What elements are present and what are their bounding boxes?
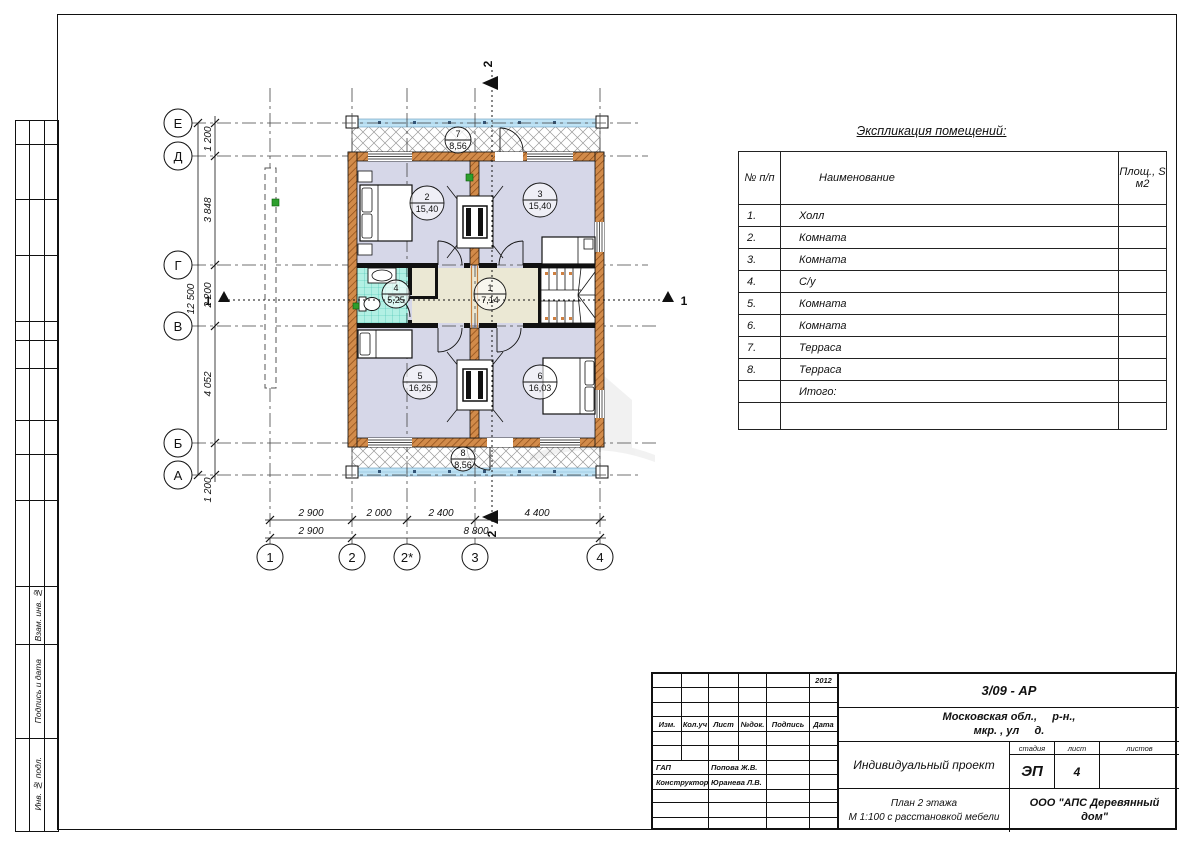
stamp-col-list: Лист (709, 717, 739, 732)
svg-text:4 400: 4 400 (524, 508, 549, 519)
table-row: 3.Комната (739, 249, 1167, 271)
table-header-row: № п/п Наименование Площ., S м2 (739, 152, 1167, 205)
table-row: 4.С/у (739, 271, 1167, 293)
svg-text:2: 2 (424, 192, 429, 202)
svg-text:2: 2 (348, 550, 355, 565)
stamp-sheets-label: листов (1100, 742, 1179, 755)
svg-text:6: 6 (537, 371, 542, 381)
stamp-doc-code: 3/09 - АР (839, 674, 1179, 708)
explication-table: № п/п Наименование Площ., S м2 1.Холл 2.… (738, 151, 1167, 430)
stamp-col-dok: №док. (739, 717, 767, 732)
stamp-stage-value: ЭП (1010, 755, 1055, 789)
stamp-name-gap: Попова Ж.В. (709, 761, 767, 775)
room-label-3: 3 15,40 (523, 183, 557, 217)
header-name: Наименование (781, 152, 1119, 205)
stamp-col-izm: Изм. (653, 717, 682, 732)
room-label-8: 8 8,56 (451, 447, 475, 471)
svg-text:2: 2 (481, 60, 495, 67)
svg-text:16,03: 16,03 (529, 383, 552, 393)
table-row: 2.Комната (739, 227, 1167, 249)
svg-text:16,26: 16,26 (409, 383, 432, 393)
axis-col-bubbles: 1 2 2* 3 4 (257, 544, 613, 570)
table-row: 8.Терраса (739, 359, 1167, 381)
table-row: 7.Терраса (739, 337, 1167, 359)
bed-room3 (542, 237, 595, 264)
svg-text:1: 1 (266, 550, 273, 565)
stamp-role-konstruktor: Конструктор (653, 775, 709, 790)
svg-text:1: 1 (681, 294, 688, 308)
stamp-sheet-label: лист (1055, 742, 1100, 755)
stamp-year: 2012 (810, 674, 839, 688)
svg-text:1 200: 1 200 (203, 126, 214, 151)
table-row-empty (739, 403, 1167, 430)
table-row: 6.Комната (739, 315, 1167, 337)
svg-text:2*: 2* (401, 550, 413, 565)
svg-text:2 900: 2 900 (297, 526, 323, 537)
svg-text:2 900: 2 900 (297, 508, 323, 519)
svg-text:12 500: 12 500 (186, 283, 197, 314)
stamp-address: Московская обл., р-н., мкр. , ул д. (839, 708, 1179, 742)
svg-text:4 052: 4 052 (203, 371, 214, 396)
header-area: Площ., S м2 (1119, 152, 1167, 205)
svg-text:Е: Е (174, 116, 183, 131)
svg-text:4: 4 (393, 283, 398, 293)
svg-text:Д: Д (174, 149, 183, 164)
svg-text:4: 4 (596, 550, 603, 565)
svg-text:3: 3 (537, 189, 542, 199)
svg-text:7: 7 (455, 129, 460, 139)
room-label-1: 1 7,14 (474, 278, 506, 310)
svg-text:2: 2 (485, 530, 499, 537)
svg-text:3 848: 3 848 (203, 197, 214, 222)
stamp-drawing-title: План 2 этажа М 1:100 с расстановкой мебе… (839, 789, 1010, 832)
room-label-6: 6 16,03 (523, 365, 557, 399)
drawing-sheet: Взам. инв. № Подпись и дата Инв. № подл. (0, 0, 1191, 842)
room-label-5: 5 16,26 (403, 365, 437, 399)
svg-text:15,40: 15,40 (416, 204, 439, 214)
stamp-col-podpis: Подпись (767, 717, 810, 732)
stamp-col-data: Дата (810, 717, 839, 732)
svg-text:8,56: 8,56 (454, 460, 472, 470)
svg-text:8,56: 8,56 (449, 141, 467, 151)
toilet (359, 297, 380, 311)
svg-text:А: А (174, 468, 183, 483)
room-label-2: 2 15,40 (410, 186, 444, 220)
stamp-sheets-total (1100, 755, 1179, 789)
svg-text:В: В (174, 319, 183, 334)
stamp-project: Индивидуальный проект (839, 742, 1010, 789)
title-block: 2012 Изм. Кол.уч Лист №док. Подпись Дата (651, 672, 1177, 830)
bed-room5 (358, 330, 412, 358)
stamp-stage-label: стадия (1010, 742, 1055, 755)
svg-text:Г: Г (174, 258, 181, 273)
bottom-dimensions: 2 900 2 000 2 400 4 400 2 900 8 800 (265, 508, 606, 542)
room-label-4: 4 5,25 (382, 280, 410, 308)
svg-text:15,40: 15,40 (529, 201, 552, 211)
top-terrace (352, 123, 600, 152)
stamp-col-koluch: Кол.уч (682, 717, 709, 732)
explication-title: Экспликация помещений: (738, 124, 1125, 138)
svg-text:1 200: 1 200 (203, 477, 214, 502)
staircase (541, 268, 595, 323)
stamp-organization: ООО "АПС Деревянный дом" (1010, 789, 1179, 832)
stamp-role-gap: ГАП (653, 761, 709, 775)
svg-text:2 000: 2 000 (365, 508, 391, 519)
svg-text:5: 5 (417, 371, 422, 381)
svg-text:Б: Б (174, 436, 183, 451)
svg-text:3: 3 (471, 550, 478, 565)
svg-text:8: 8 (460, 448, 465, 458)
table-row: 1.Холл (739, 205, 1167, 227)
header-num: № п/п (739, 152, 781, 205)
svg-text:1: 1 (205, 294, 212, 308)
stamp-name-konstruktor: Юранева Л.В. (709, 775, 767, 790)
room-label-7: 7 8,56 (445, 127, 471, 153)
table-row: 5.Комната (739, 293, 1167, 315)
explication: Экспликация помещений: № п/п Наименовани… (738, 124, 1125, 430)
stamp-sheet-number: 4 (1055, 755, 1100, 789)
table-row-total: Итого: (739, 381, 1167, 403)
svg-text:2 400: 2 400 (427, 508, 453, 519)
